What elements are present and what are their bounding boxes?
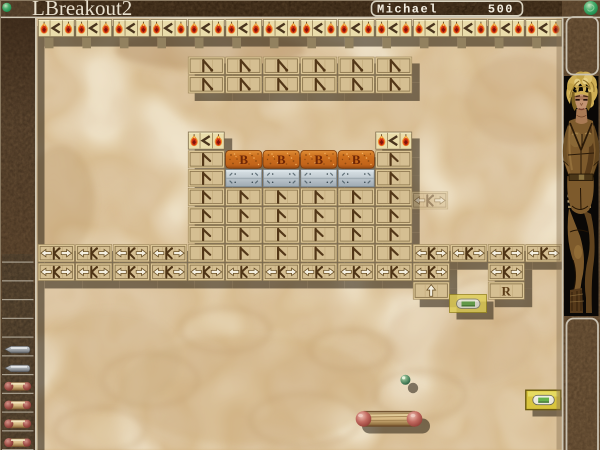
svg-text:Michael: Michael: [377, 3, 438, 17]
svg-text:LBreakout2: LBreakout2: [32, 0, 132, 20]
svg-text:23272: 23272: [446, 5, 485, 17]
svg-text:500: 500: [488, 3, 514, 17]
